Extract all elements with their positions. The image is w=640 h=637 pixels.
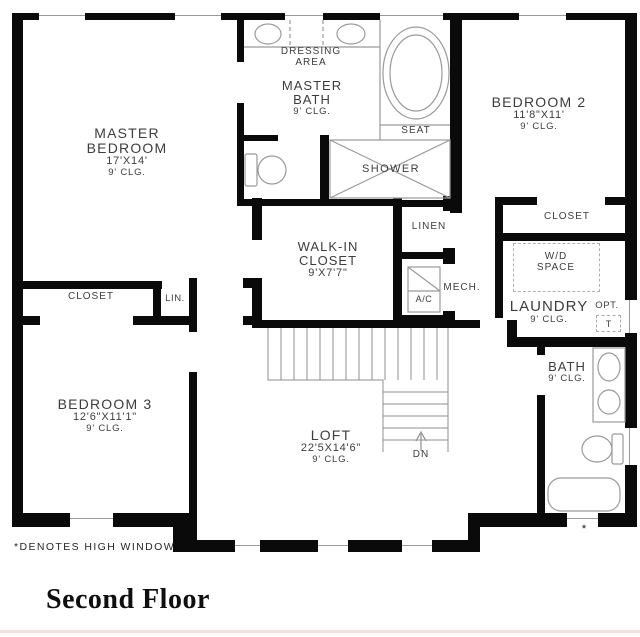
optional-tub-box: T xyxy=(596,315,621,332)
high-window-footnote: *DENOTES HIGH WINDOW xyxy=(14,541,175,553)
toilet-icon xyxy=(245,154,286,186)
sink-icon xyxy=(598,353,620,381)
ac-label: A/C xyxy=(416,295,433,305)
room-label-laundry: LAUNDRY 9' CLG. xyxy=(510,299,588,325)
sink-icon xyxy=(598,390,620,414)
closet-bedroom3-label: CLOSET xyxy=(68,292,114,303)
tub-icon xyxy=(383,27,449,119)
room-label-loft: LOFT 22'5X14'6" 9' CLG. xyxy=(301,428,361,465)
mech-label: MECH. xyxy=(443,283,480,294)
room-label-bedroom-3: BEDROOM 3 12'6"X11'1" 9' CLG. xyxy=(58,397,153,434)
page-title: Second Floor xyxy=(46,584,210,616)
sink-icon xyxy=(255,24,281,44)
master-tub xyxy=(380,20,450,140)
optional-tub-label: T xyxy=(606,319,612,329)
closet-bedroom2-label: CLOSET xyxy=(544,212,590,223)
room-label-walk-in-closet: WALK-IN CLOSET 9'X7'7" xyxy=(298,240,359,280)
linen-label: LINEN xyxy=(412,222,446,233)
sink-icon xyxy=(337,24,365,44)
shower-label: SHOWER xyxy=(362,164,420,176)
toilet-icon xyxy=(582,434,623,464)
high-window-marker: * xyxy=(582,523,586,535)
optional-label: OPT. xyxy=(595,301,619,311)
floor-plan: T MASTER BEDROOM 17'X14' 9' CLG. DRESSIN… xyxy=(0,0,640,637)
down-label: DN xyxy=(413,450,429,461)
room-label-dressing-area: DRESSING AREA xyxy=(281,47,341,69)
seat-label: SEAT xyxy=(401,126,430,137)
wd-space-label: W/D SPACE xyxy=(537,252,575,274)
room-label-master-bedroom: MASTER BEDROOM 17'X14' 9' CLG. xyxy=(87,126,168,178)
room-label-bedroom-2: BEDROOM 2 11'8"X11' 9' CLG. xyxy=(492,95,587,132)
tub-icon xyxy=(548,478,620,511)
vanity-dressing xyxy=(244,20,380,47)
ac-unit xyxy=(408,267,440,312)
lin-label: LIN. xyxy=(165,294,185,304)
page-edge xyxy=(0,630,640,633)
vanity-bath xyxy=(593,348,625,422)
room-label-bath: BATH 9' CLG. xyxy=(548,360,586,384)
room-label-master-bath: MASTER BATH 9' CLG. xyxy=(282,79,342,117)
